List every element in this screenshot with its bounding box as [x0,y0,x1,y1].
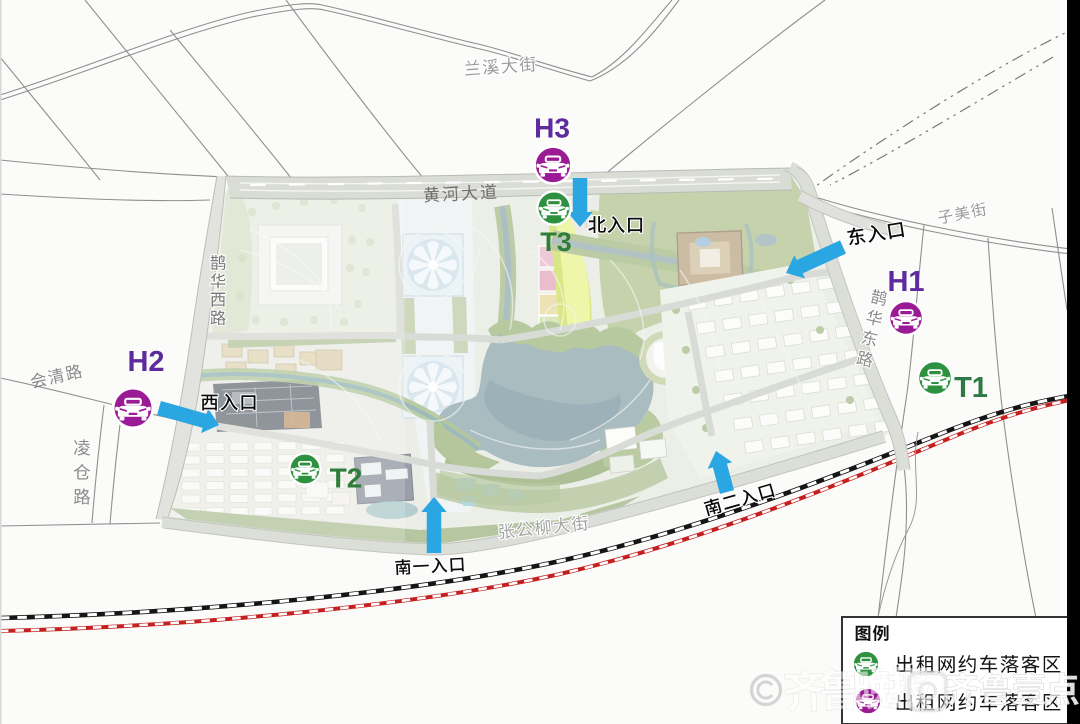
svg-text:H1: H1 [887,266,924,298]
svg-text:T3: T3 [540,227,572,257]
svg-text:T2: T2 [330,463,363,494]
svg-text:H3: H3 [534,113,570,144]
svg-text:H2: H2 [127,346,164,378]
svg-text:T1: T1 [954,372,988,404]
